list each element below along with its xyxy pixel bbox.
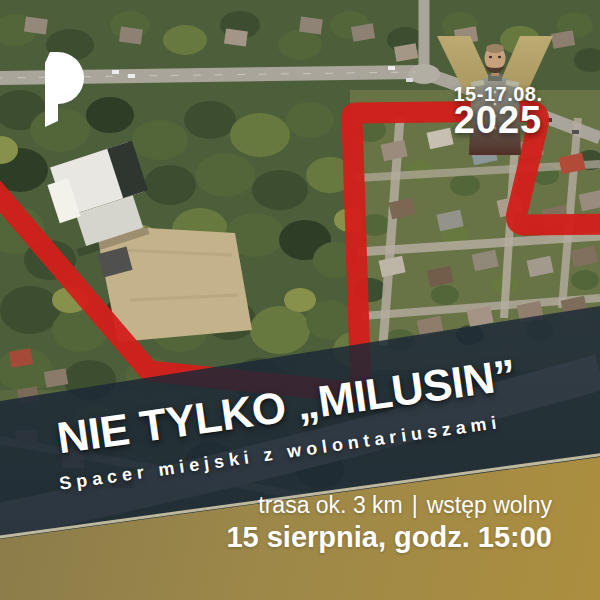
route-length: trasa ok. 3 km bbox=[258, 492, 402, 518]
jp-monogram-logo bbox=[0, 0, 110, 140]
event-datetime: 15 sierpnia, godz. 15:00 bbox=[226, 521, 552, 554]
event-poster: 15-17.08. 2025 NIE TYLKO „MILUSIN” Space… bbox=[0, 0, 600, 600]
admission-info: wstęp wolny bbox=[427, 492, 552, 518]
details-separator: | bbox=[403, 492, 427, 518]
badge-year: 2025 bbox=[423, 99, 573, 142]
event-details-line: trasa ok. 3 km|wstęp wolny bbox=[258, 492, 552, 519]
